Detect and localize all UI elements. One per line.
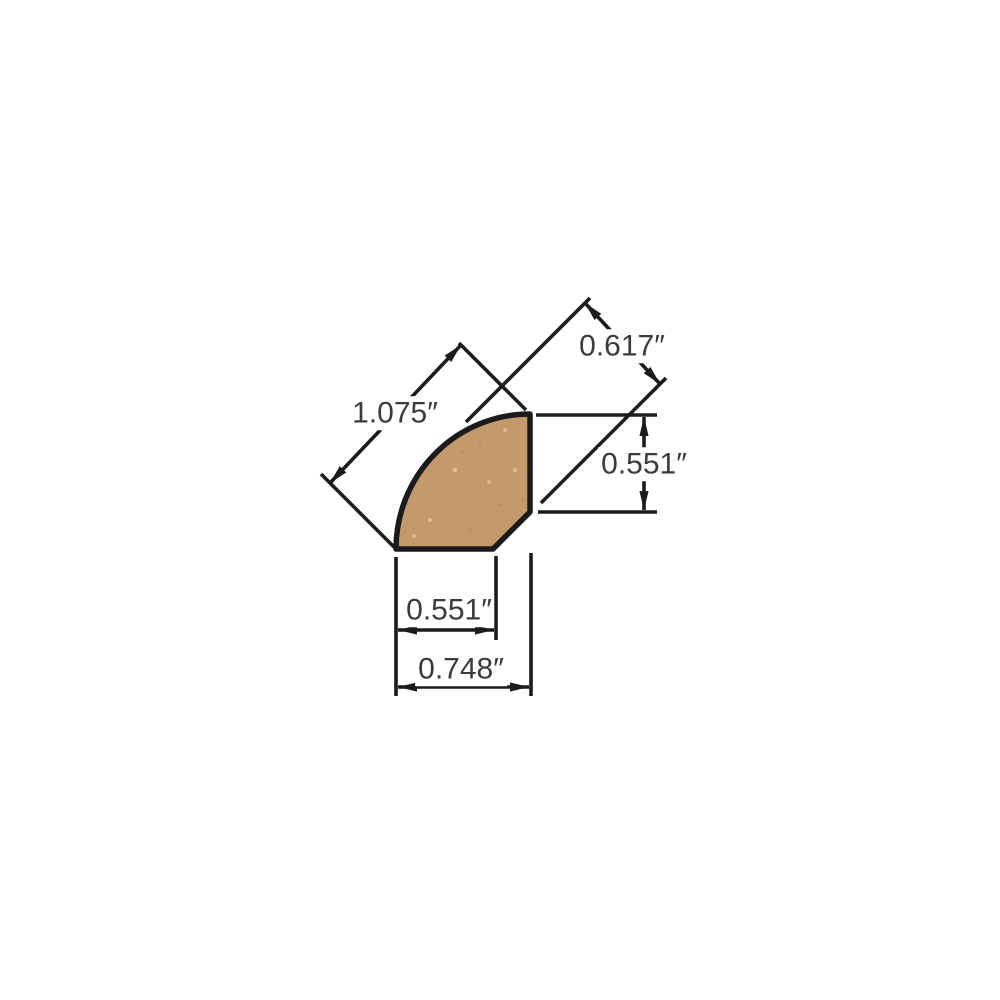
extension-line-face-chamfer (541, 378, 666, 503)
extension-line-face-tangent (466, 298, 590, 422)
dim-label-angled-face: 0.617″ (576, 329, 668, 363)
dim-label-bottom-width: 0.551″ (404, 593, 494, 627)
profile-diagram-canvas (0, 0, 1000, 1000)
molding-cross-section (396, 414, 530, 549)
dim-label-right-height: 0.551″ (598, 447, 690, 481)
extension-line-diagonal-lower (321, 474, 394, 547)
extension-line-diagonal-upper (459, 343, 526, 410)
dim-label-overall-width: 0.748″ (415, 652, 507, 686)
diagram-page: 1.075″ 0.617″ 0.551″ 0.551″ 0.748″ (0, 0, 1000, 1000)
dim-label-diagonal-back: 1.075″ (349, 396, 441, 430)
